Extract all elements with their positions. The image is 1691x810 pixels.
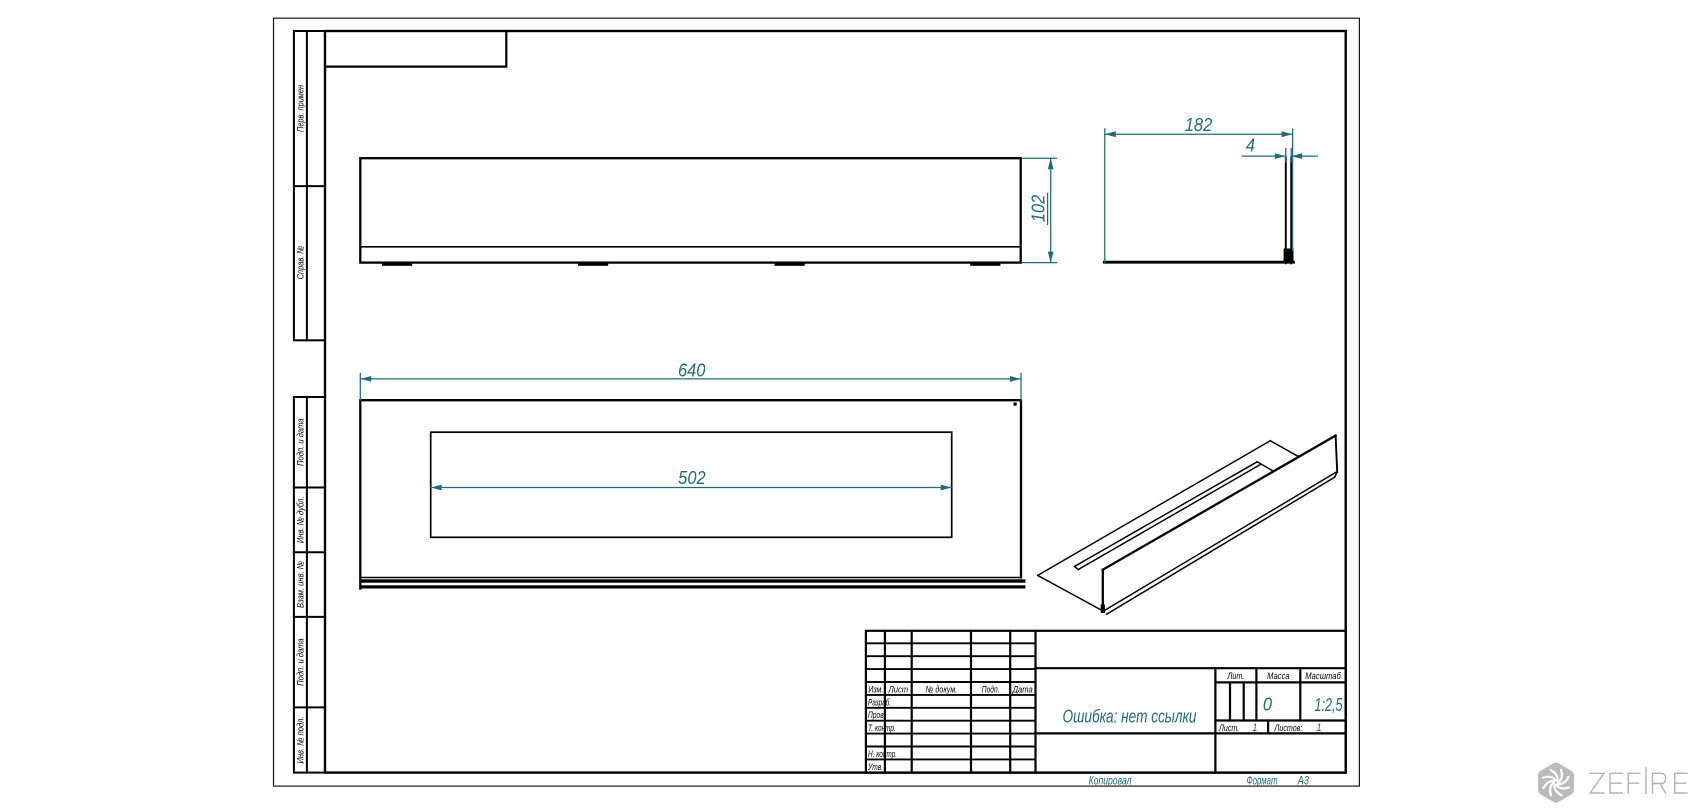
svg-text:Листов:: Листов: (1274, 722, 1303, 733)
svg-text:Пров.: Пров. (868, 710, 886, 720)
svg-text:Подп. и дата: Подп. и дата (295, 418, 306, 466)
svg-text:А3: А3 (1297, 776, 1309, 788)
svg-text:Ошибка: нет ссылки: Ошибка: нет ссылки (1063, 706, 1197, 727)
svg-text:182: 182 (1185, 114, 1213, 135)
svg-text:Дата: Дата (1012, 684, 1033, 695)
svg-text:Перв. примен: Перв. примен (295, 85, 306, 132)
svg-text:4: 4 (1246, 135, 1255, 156)
svg-text:Копировал: Копировал (1089, 775, 1132, 787)
svg-text:Разраб.: Разраб. (868, 697, 891, 708)
svg-text:Инв. № дубл.: Инв. № дубл. (295, 496, 306, 543)
svg-text:Формат: Формат (1246, 775, 1277, 788)
svg-text:Масса: Масса (1267, 670, 1290, 681)
svg-text:502: 502 (678, 467, 706, 488)
svg-text:Лист.: Лист. (1218, 722, 1239, 733)
svg-text:Подп. и дата: Подп. и дата (295, 638, 306, 686)
svg-text:Утв.: Утв. (867, 762, 883, 772)
svg-text:102: 102 (1028, 195, 1049, 223)
svg-text:Масштаб: Масштаб (1305, 670, 1341, 681)
svg-text:Справ. №: Справ. № (295, 246, 306, 280)
svg-text:1: 1 (1316, 722, 1321, 734)
svg-text:0: 0 (1263, 693, 1272, 714)
svg-text:Лист: Лист (888, 684, 908, 695)
svg-text:Лит.: Лит. (1227, 670, 1245, 681)
svg-text:1: 1 (1252, 722, 1257, 734)
svg-text:Н. контр.: Н. контр. (868, 749, 897, 760)
svg-text:1:2,5: 1:2,5 (1315, 696, 1343, 716)
svg-text:Подп.: Подп. (982, 684, 1000, 694)
svg-text:Инв. № подл.: Инв. № подл. (295, 716, 306, 763)
svg-text:Изм.: Изм. (868, 683, 883, 694)
svg-text:Взам. инв. №: Взам. инв. № (295, 561, 306, 608)
svg-text:Т. контр.: Т. контр. (868, 723, 896, 734)
svg-text:640: 640 (678, 360, 706, 381)
svg-text:№ докум.: № докум. (926, 683, 958, 694)
